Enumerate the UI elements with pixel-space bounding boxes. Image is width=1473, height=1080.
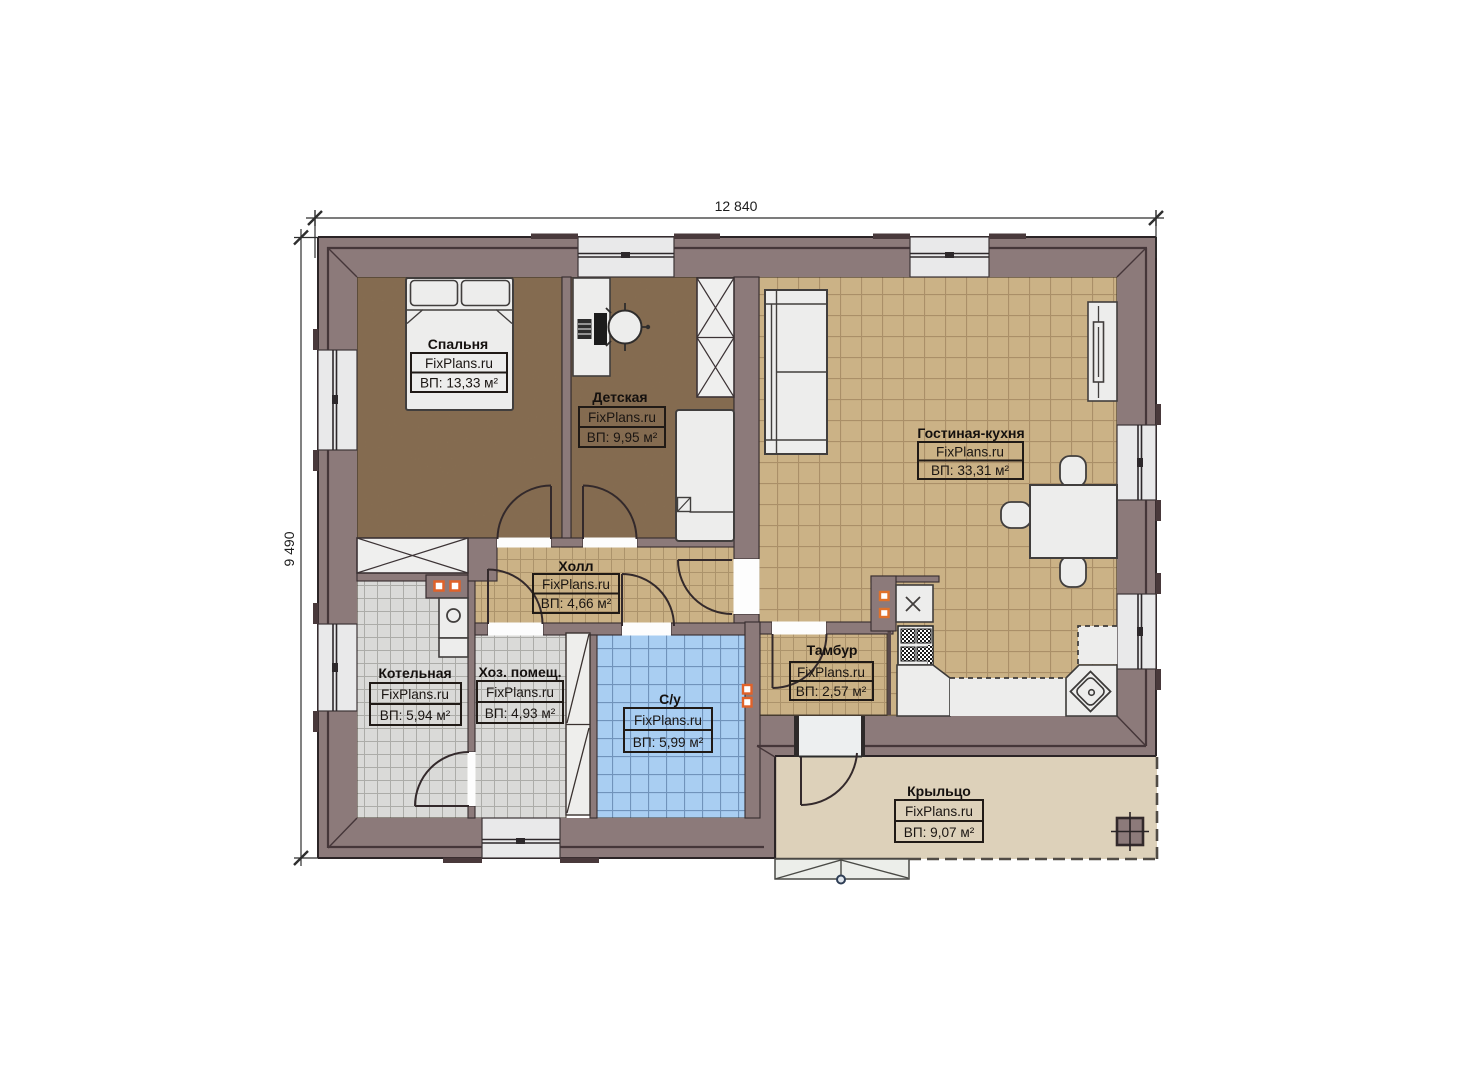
- svg-text:FixPlans.ru: FixPlans.ru: [634, 713, 702, 728]
- svg-text:ВП: 2,57 м²: ВП: 2,57 м²: [796, 684, 867, 699]
- svg-text:9 490: 9 490: [281, 531, 297, 566]
- svg-text:FixPlans.ru: FixPlans.ru: [905, 804, 973, 819]
- svg-text:Котельная: Котельная: [378, 665, 451, 681]
- svg-text:FixPlans.ru: FixPlans.ru: [542, 577, 610, 592]
- svg-text:Хоз. помещ.: Хоз. помещ.: [479, 664, 562, 680]
- svg-text:ВП: 9,95 м²: ВП: 9,95 м²: [587, 430, 658, 445]
- svg-text:Спальня: Спальня: [428, 336, 488, 352]
- svg-text:Холл: Холл: [558, 558, 593, 574]
- svg-text:ВП: 33,31 м²: ВП: 33,31 м²: [931, 463, 1010, 478]
- svg-text:FixPlans.ru: FixPlans.ru: [425, 356, 493, 371]
- svg-text:ВП: 4,93 м²: ВП: 4,93 м²: [485, 706, 556, 721]
- svg-text:ВП: 13,33 м²: ВП: 13,33 м²: [420, 376, 499, 391]
- svg-text:ВП: 4,66 м²: ВП: 4,66 м²: [541, 596, 612, 611]
- svg-text:FixPlans.ru: FixPlans.ru: [936, 445, 1004, 460]
- svg-text:FixPlans.ru: FixPlans.ru: [797, 665, 865, 680]
- svg-text:С/у: С/у: [659, 691, 681, 707]
- svg-text:Гостиная-кухня: Гостиная-кухня: [917, 425, 1024, 441]
- svg-text:ВП: 5,99 м²: ВП: 5,99 м²: [633, 735, 704, 750]
- svg-text:FixPlans.ru: FixPlans.ru: [381, 687, 449, 702]
- svg-text:FixPlans.ru: FixPlans.ru: [588, 410, 656, 425]
- svg-text:ВП: 5,94 м²: ВП: 5,94 м²: [380, 708, 451, 723]
- svg-text:FixPlans.ru: FixPlans.ru: [486, 685, 554, 700]
- svg-text:Крыльцо: Крыльцо: [907, 783, 971, 799]
- svg-text:Тамбур: Тамбур: [807, 642, 858, 658]
- svg-text:ВП: 9,07 м²: ВП: 9,07 м²: [904, 825, 975, 840]
- svg-text:12 840: 12 840: [715, 198, 758, 214]
- svg-text:Детская: Детская: [592, 389, 647, 405]
